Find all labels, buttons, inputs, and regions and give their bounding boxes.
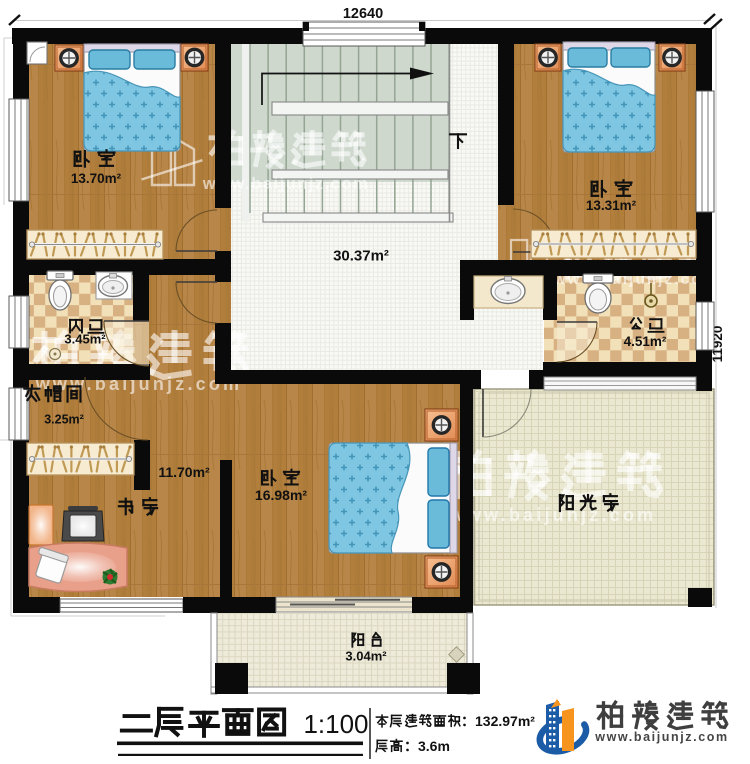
- svg-text:12640: 12640: [343, 6, 383, 22]
- svg-text:www.baijunjz.com: www.baijunjz.com: [449, 505, 657, 525]
- svg-text:3.04m²: 3.04m²: [345, 649, 387, 664]
- svg-text:3.45m²: 3.45m²: [64, 332, 106, 347]
- svg-text:30.37m²: 30.37m²: [333, 247, 389, 264]
- svg-text:：3.6m: ：3.6m: [404, 738, 450, 754]
- svg-text:13.70m²: 13.70m²: [71, 171, 122, 186]
- svg-text:www.baijunjz.com: www.baijunjz.com: [594, 730, 728, 744]
- svg-text:16.98m²: 16.98m²: [255, 487, 307, 503]
- svg-text:11.70m²: 11.70m²: [158, 464, 210, 480]
- svg-text:：132.97m²: ：132.97m²: [461, 713, 535, 729]
- svg-text:4.51m²: 4.51m²: [624, 334, 667, 349]
- svg-text:1:100: 1:100: [303, 709, 368, 739]
- svg-text:3.25m²: 3.25m²: [44, 413, 84, 427]
- svg-text:13.31m²: 13.31m²: [586, 198, 637, 213]
